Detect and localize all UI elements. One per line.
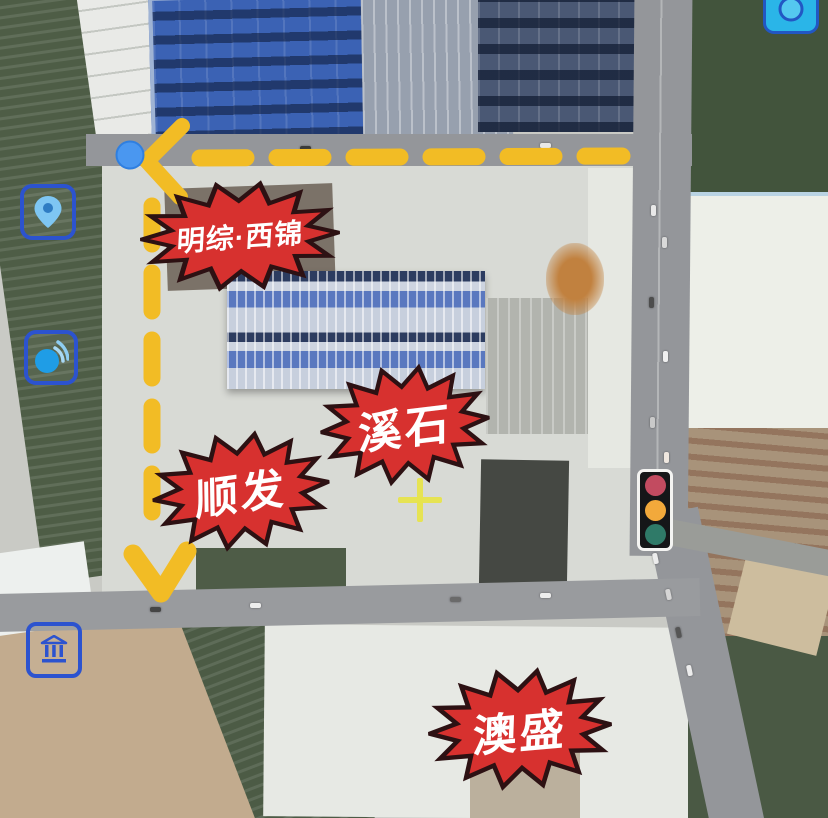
traffic-light-icon bbox=[637, 469, 673, 551]
label-xishi-text: 溪石 bbox=[358, 387, 452, 463]
traffic-light-green-lamp bbox=[645, 524, 666, 545]
building-blue-factory bbox=[148, 0, 375, 145]
bank-building-marker[interactable] bbox=[26, 622, 82, 678]
car bbox=[540, 143, 551, 148]
car bbox=[540, 593, 551, 598]
label-shunfa-text: 顺发 bbox=[195, 453, 288, 528]
car bbox=[150, 607, 161, 612]
label-aosheng-text: 澳盛 bbox=[472, 693, 568, 765]
label-burst-mingzong: 明综·西锦 bbox=[138, 177, 342, 296]
signal-compass-marker[interactable] bbox=[24, 330, 78, 385]
car bbox=[662, 237, 667, 248]
bank-building-icon bbox=[39, 635, 69, 665]
traffic-light-red-lamp bbox=[645, 475, 666, 496]
camera-icon bbox=[776, 0, 806, 22]
building-gray-mid bbox=[486, 298, 588, 434]
car bbox=[663, 351, 668, 362]
building-dark-roof bbox=[479, 459, 569, 589]
location-pin-marker[interactable] bbox=[20, 184, 76, 240]
tree-strip-south bbox=[196, 548, 346, 592]
car bbox=[250, 603, 261, 608]
car bbox=[651, 205, 656, 216]
road-top bbox=[86, 134, 692, 166]
label-burst-aosheng: 澳盛 bbox=[425, 662, 615, 795]
car bbox=[450, 597, 461, 602]
traffic-light-amber-lamp bbox=[645, 500, 666, 521]
car bbox=[664, 452, 669, 463]
car bbox=[649, 297, 654, 308]
label-burst-shunfa: 顺发 bbox=[146, 422, 336, 560]
label-burst-xishi: 溪石 bbox=[315, 357, 495, 493]
location-pin-icon bbox=[33, 195, 63, 229]
signal-compass-icon bbox=[33, 340, 69, 376]
car bbox=[650, 417, 655, 428]
map-canvas[interactable]: 明综·西锦 溪石 顺发 澳盛 bbox=[0, 0, 828, 818]
camera-marker[interactable] bbox=[763, 0, 819, 34]
car bbox=[300, 146, 311, 151]
dirt-mound bbox=[546, 243, 604, 315]
